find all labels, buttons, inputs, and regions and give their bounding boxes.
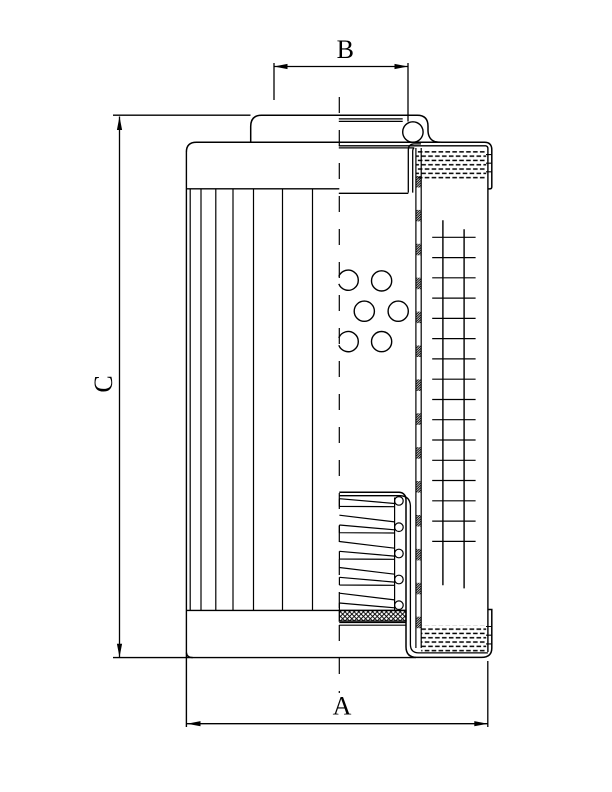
svg-text:A: A — [333, 692, 352, 721]
svg-text:C: C — [89, 375, 118, 392]
svg-text:B: B — [337, 35, 354, 64]
